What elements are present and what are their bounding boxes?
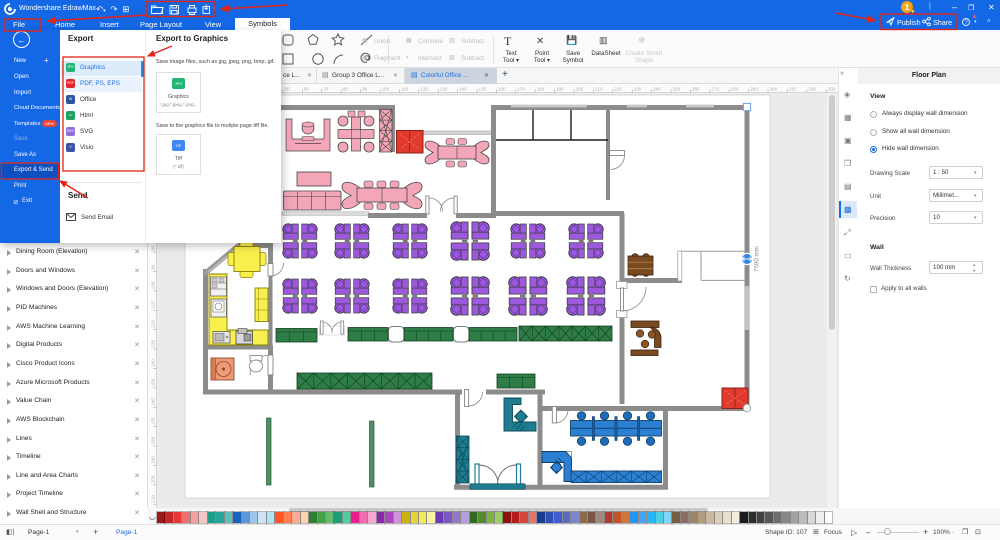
svg-text:1: 1 xyxy=(905,2,910,12)
